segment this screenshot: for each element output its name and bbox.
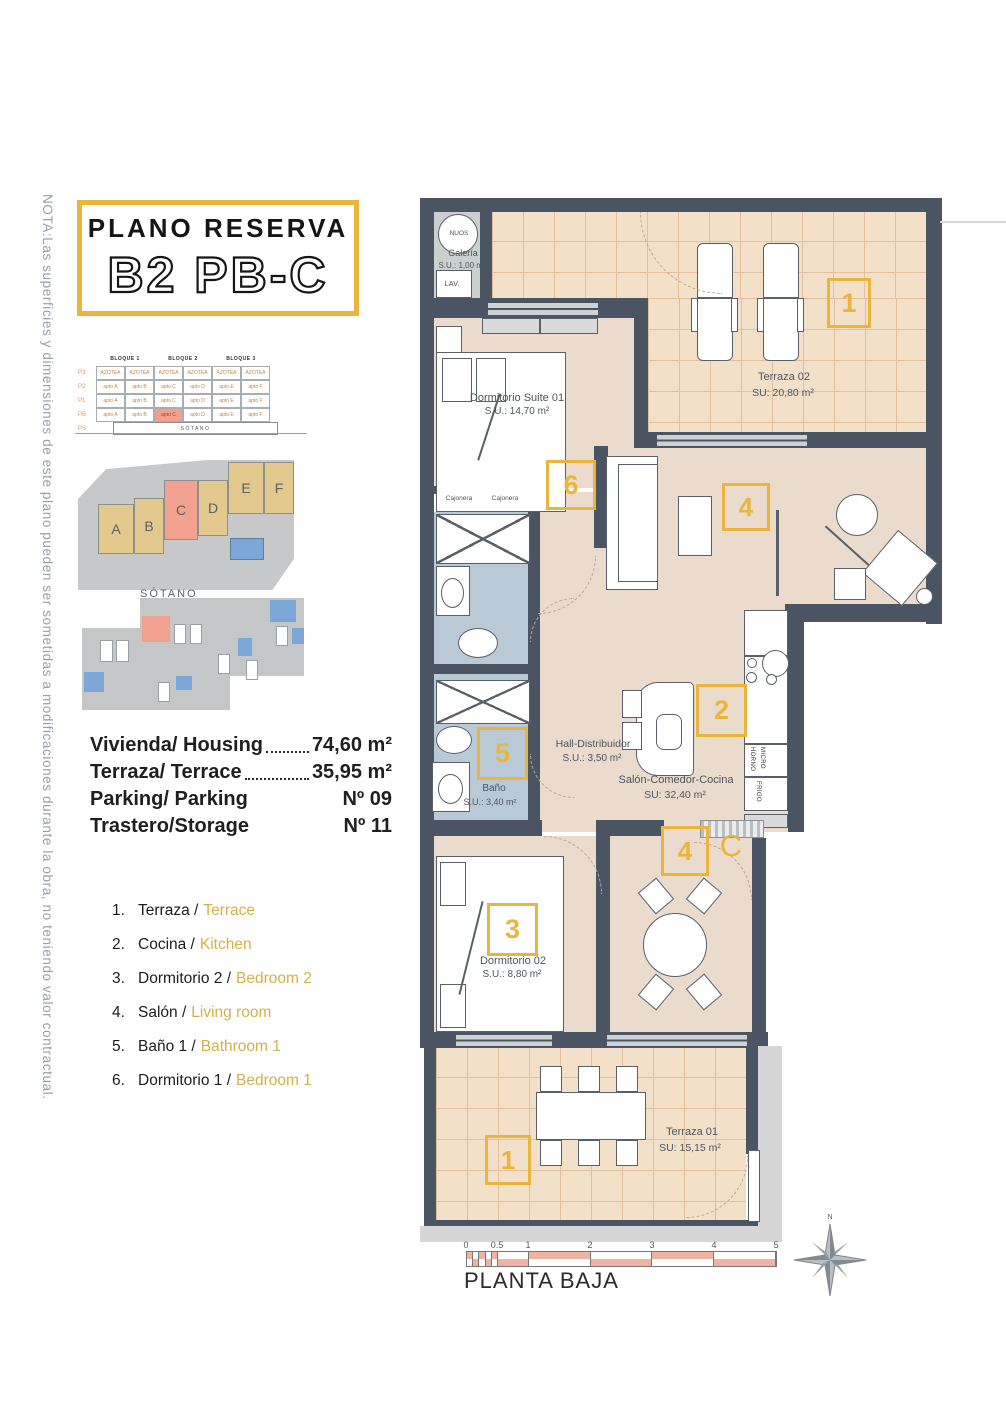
basement-shape bbox=[84, 672, 104, 692]
shower bbox=[436, 514, 530, 564]
suite-name: Dormitorio Suite 01 bbox=[470, 392, 564, 404]
hall-name: Hall-Distribuidor bbox=[556, 738, 631, 750]
legend-english: Bedroom 2 bbox=[236, 970, 312, 988]
galeria-name: Galería bbox=[448, 248, 478, 258]
water-heater-label: NUOS bbox=[450, 230, 469, 237]
marker-bedroom1: 6 bbox=[546, 460, 596, 510]
apartment-cell: apto A bbox=[96, 380, 125, 394]
apartment-cell: AZOTEA bbox=[154, 366, 183, 380]
apartment-cell: apto C bbox=[154, 394, 183, 408]
apartment-cell: AZOTEA bbox=[96, 366, 125, 380]
apartment-cell: AZOTEA bbox=[183, 366, 212, 380]
legend-spanish: Dormitorio 1 / bbox=[138, 1072, 231, 1090]
sun-lounger bbox=[763, 243, 799, 361]
wall-segment bbox=[596, 830, 610, 1034]
floor-label: PB bbox=[78, 408, 96, 422]
scale-cell bbox=[591, 1259, 653, 1266]
armrest bbox=[691, 298, 698, 332]
counter bbox=[744, 610, 788, 656]
unit-code: B2 PB-C bbox=[107, 246, 328, 304]
surface-details: Vivienda/ Housing74,60 m²Terraza/ Terrac… bbox=[90, 730, 392, 838]
scale-cell bbox=[714, 1259, 776, 1266]
legend-item: 2.Cocina /Kitchen bbox=[112, 936, 312, 970]
legend-spanish: Salón / bbox=[138, 1004, 186, 1022]
page-title: PLANO RESERVA bbox=[88, 213, 349, 244]
marker-bedroom2: 3 bbox=[487, 903, 538, 956]
basement-shape bbox=[276, 626, 288, 646]
scale-tick: 0 bbox=[463, 1240, 468, 1250]
cajonera-label-2: Cajonera bbox=[492, 495, 518, 502]
basement-shape bbox=[238, 638, 252, 656]
legend-number: 3. bbox=[112, 970, 138, 988]
detail-label: Vivienda/ Housing bbox=[90, 734, 263, 757]
apartment-cell: apto E bbox=[212, 394, 241, 408]
wall-segment bbox=[420, 198, 942, 212]
apartment-cell: AZOTEA bbox=[125, 366, 154, 380]
apartment-cell: apto B bbox=[125, 408, 154, 422]
scale-bar: 00.512345 bbox=[466, 1240, 778, 1267]
scale-cell bbox=[498, 1252, 529, 1259]
legend-item: 5.Baño 1 /Bathroom 1 bbox=[112, 1038, 312, 1072]
hob-burner bbox=[746, 672, 757, 683]
detail-row: Terraza/ Terrace35,95 m² bbox=[90, 757, 392, 784]
lounger-bar bbox=[697, 297, 733, 299]
fridge-label: FRIGO bbox=[755, 781, 761, 811]
detail-label: Terraza/ Terrace bbox=[90, 761, 242, 784]
marker-living: 4 bbox=[722, 483, 770, 531]
wall-segment bbox=[785, 604, 942, 622]
washbasin bbox=[441, 578, 464, 608]
terrace-chair bbox=[540, 1140, 562, 1166]
apartment-cell: apto F bbox=[241, 408, 270, 422]
legend-spanish: Cocina / bbox=[138, 936, 195, 954]
hob-burner bbox=[766, 674, 777, 685]
legend-item: 6.Dormitorio 1 /Bedroom 1 bbox=[112, 1072, 312, 1106]
legend-english: Bathroom 1 bbox=[201, 1038, 281, 1056]
apartment-cell: apto A bbox=[96, 394, 125, 408]
apartment-cell: apto D bbox=[183, 394, 212, 408]
terrace-chair bbox=[616, 1140, 638, 1166]
scale-cell bbox=[529, 1259, 591, 1266]
scale-cell bbox=[714, 1252, 776, 1259]
boundary-line bbox=[940, 221, 1006, 223]
window bbox=[606, 1034, 748, 1047]
scale-tick: 4 bbox=[711, 1240, 716, 1250]
apartment-cell: apto C bbox=[154, 380, 183, 394]
wall-segment bbox=[420, 198, 434, 1048]
side-table bbox=[834, 568, 866, 600]
scale-cell bbox=[529, 1252, 591, 1259]
nightstand bbox=[436, 326, 462, 354]
toilet bbox=[458, 628, 498, 658]
legend-number: 5. bbox=[112, 1038, 138, 1056]
bano-name: Baño bbox=[482, 783, 505, 794]
terrace-chair bbox=[578, 1066, 600, 1092]
scale-tick: 5 bbox=[773, 1240, 778, 1250]
lamp-base bbox=[916, 588, 933, 605]
scale-cell bbox=[591, 1252, 653, 1259]
detail-row: Vivienda/ Housing74,60 m² bbox=[90, 730, 392, 757]
legend-number: 6. bbox=[112, 1072, 138, 1090]
apartment-cell: apto E bbox=[212, 408, 241, 422]
detail-label: Parking/ Parking bbox=[90, 788, 248, 811]
compass-star-icon bbox=[792, 1222, 868, 1298]
apartment-cell: apto A bbox=[96, 408, 125, 422]
basement-shape bbox=[270, 600, 296, 622]
legend-english: Terrace bbox=[203, 902, 255, 920]
legend-item: 4.Salón /Living room bbox=[112, 1004, 312, 1038]
floor-level-label: PLANTA BAJA bbox=[464, 1268, 619, 1294]
wardrobe bbox=[482, 318, 540, 334]
dining-table bbox=[643, 913, 707, 977]
scale-tick: 0.5 bbox=[491, 1240, 504, 1250]
floor-label: P1 bbox=[78, 394, 96, 408]
pillow bbox=[440, 862, 466, 906]
detail-value: Nº 11 bbox=[344, 815, 392, 838]
scale-tick: 1 bbox=[525, 1240, 530, 1250]
site-block-E: E bbox=[228, 462, 264, 514]
fridge-cabinet bbox=[744, 777, 788, 811]
legend-item: 1.Terraza /Terrace bbox=[112, 902, 312, 936]
site-block-B: B bbox=[134, 498, 164, 554]
terraza02-name: Terraza 02 bbox=[758, 371, 810, 383]
floor-plan-page: NOTA:Las superficies y dimensiones de es… bbox=[0, 0, 1006, 1425]
floor-lamp bbox=[836, 494, 878, 536]
armrest bbox=[757, 298, 764, 332]
marker-kitchen: 2 bbox=[696, 684, 747, 737]
basement-mini-map: SÓTANO bbox=[78, 582, 306, 714]
suite-area: S.U.: 14,70 m² bbox=[485, 406, 549, 417]
legend-english: Living room bbox=[191, 1004, 271, 1022]
basement-shape bbox=[142, 616, 170, 642]
coffee-table bbox=[678, 496, 712, 556]
marker-dining: 4 bbox=[661, 826, 709, 876]
terraza01-area: SU: 15,15 m² bbox=[659, 1142, 721, 1154]
window bbox=[656, 434, 808, 447]
armrest bbox=[731, 298, 738, 332]
marker-terrace-02: 1 bbox=[827, 278, 871, 328]
scale-tick: 3 bbox=[649, 1240, 654, 1250]
legend-spanish: Terraza / bbox=[138, 902, 198, 920]
apartment-cell: apto B bbox=[125, 380, 154, 394]
site-pool bbox=[230, 538, 264, 560]
armrest bbox=[797, 298, 804, 332]
detail-value: Nº 09 bbox=[342, 788, 392, 811]
detail-value: 74,60 m² bbox=[312, 734, 392, 757]
door-leaf bbox=[748, 1150, 760, 1222]
galeria-area: S.U.: 1,00 m² bbox=[438, 261, 485, 270]
island-sink bbox=[656, 714, 682, 750]
bano-area: S.U.: 3,40 m² bbox=[463, 797, 516, 807]
washbasin bbox=[438, 774, 463, 804]
sidewalk bbox=[758, 1046, 782, 1242]
scale-segments bbox=[466, 1251, 777, 1267]
wall-segment bbox=[634, 298, 648, 448]
marker-bathroom: 5 bbox=[477, 727, 528, 780]
window bbox=[455, 1034, 553, 1047]
vertical-disclaimer: NOTA:Las superficies y dimensiones de es… bbox=[40, 194, 55, 1100]
detail-value: 35,95 m² bbox=[312, 761, 392, 784]
table-rule bbox=[75, 433, 307, 434]
detail-row: Parking/ ParkingNº 09 bbox=[90, 784, 392, 811]
marker-terrace-01: 1 bbox=[485, 1135, 531, 1185]
apartment-cell: apto E bbox=[212, 380, 241, 394]
apartment-cell: apto D bbox=[183, 380, 212, 394]
block-row: P3AZOTEAAZOTEAAZOTEAAZOTEAAZOTEAAZOTEA bbox=[78, 366, 278, 380]
microwave-label: MICRO bbox=[759, 747, 765, 777]
salon-area: SU: 32,40 m² bbox=[644, 789, 706, 801]
site-block-F: F bbox=[264, 462, 294, 514]
site-block-C: C bbox=[164, 480, 198, 540]
dotted-leader bbox=[245, 778, 309, 780]
terrace-chair bbox=[540, 1066, 562, 1092]
hob-burner bbox=[762, 650, 789, 677]
pillow bbox=[440, 984, 466, 1028]
scale-tick: 2 bbox=[587, 1240, 592, 1250]
wall-segment bbox=[752, 838, 766, 1034]
wall-segment bbox=[432, 820, 542, 836]
block-header: BLOQUE 2 bbox=[154, 356, 212, 366]
terrace-chair bbox=[616, 1066, 638, 1092]
basement-shape bbox=[158, 682, 170, 702]
floor-label: P2 bbox=[78, 380, 96, 394]
title-box: PLANO RESERVA B2 PB-C bbox=[77, 200, 359, 316]
legend-english: Bedroom 1 bbox=[236, 1072, 312, 1090]
scale-cell bbox=[498, 1259, 529, 1266]
dotted-leader bbox=[266, 751, 309, 753]
block-row: P1apto Aapto Bapto Capto Dapto Eapto F bbox=[78, 394, 278, 408]
block-level-table: BLOQUE 1BLOQUE 2BLOQUE 3P3AZOTEAAZOTEAAZ… bbox=[78, 356, 278, 436]
apartment-cell: apto C bbox=[154, 408, 183, 422]
legend-item: 3.Dormitorio 2 /Bedroom 2 bbox=[112, 970, 312, 1004]
block-headers: BLOQUE 1BLOQUE 2BLOQUE 3 bbox=[96, 356, 278, 366]
terrace-chair bbox=[578, 1140, 600, 1166]
lounger-bar bbox=[763, 297, 799, 299]
legend-number: 2. bbox=[112, 936, 138, 954]
stool bbox=[622, 690, 642, 718]
north-label: N bbox=[827, 1214, 832, 1221]
basement-shape bbox=[292, 628, 304, 644]
wall-segment bbox=[424, 1046, 436, 1224]
washer-label: LAV. bbox=[444, 279, 459, 288]
basement-shape bbox=[100, 640, 113, 662]
basement-shape bbox=[246, 660, 258, 680]
scale-cell bbox=[652, 1259, 714, 1266]
pillow bbox=[442, 358, 472, 402]
basement-shape bbox=[174, 624, 186, 644]
floor-label: P3 bbox=[78, 366, 96, 380]
site-block-D: D bbox=[198, 480, 228, 536]
terraza02-area: SU: 20,80 m² bbox=[752, 387, 814, 399]
basement-shape bbox=[218, 654, 230, 674]
oven-label: HORNO bbox=[749, 747, 755, 777]
block-header: BLOQUE 1 bbox=[96, 356, 154, 366]
legend-number: 1. bbox=[112, 902, 138, 920]
scale-cell bbox=[652, 1252, 714, 1259]
toilet bbox=[436, 726, 472, 754]
wall-segment bbox=[432, 664, 540, 674]
basement-shape bbox=[116, 640, 129, 662]
legend-number: 4. bbox=[112, 1004, 138, 1022]
apartment-cell: AZOTEA bbox=[241, 366, 270, 380]
tv-unit bbox=[776, 510, 779, 596]
wall-segment bbox=[480, 210, 492, 300]
hall-area: S.U.: 3,50 m² bbox=[563, 753, 622, 764]
detail-label: Trastero/Storage bbox=[90, 815, 249, 838]
dorm2-area: S.U.: 8,80 m² bbox=[483, 969, 542, 980]
terraza01-name: Terraza 01 bbox=[666, 1126, 718, 1138]
site-plan-mini-map: ABCDEF bbox=[78, 460, 294, 590]
apartment-cell: AZOTEA bbox=[212, 366, 241, 380]
salon-name: Salón-Comedor-Cocina bbox=[619, 774, 734, 786]
basement-shape bbox=[190, 624, 202, 644]
legend-spanish: Baño 1 / bbox=[138, 1038, 196, 1056]
block-header: BLOQUE 3 bbox=[212, 356, 270, 366]
wall-segment bbox=[788, 604, 804, 832]
block-row: PBapto Aapto Bapto Capto Dapto Eapto F bbox=[78, 408, 278, 422]
scale-ticks: 00.512345 bbox=[466, 1240, 778, 1251]
window bbox=[487, 302, 599, 316]
basement-shape bbox=[176, 676, 192, 690]
block-row: P2apto Aapto Bapto Capto Dapto Eapto F bbox=[78, 380, 278, 394]
legend-spanish: Dormitorio 2 / bbox=[138, 970, 231, 988]
cajonera-label-1: Cajonera bbox=[446, 495, 472, 502]
site-block-A: A bbox=[98, 504, 134, 554]
apartment-cell: apto F bbox=[241, 380, 270, 394]
wardrobe bbox=[540, 318, 598, 334]
compass-rose: N bbox=[792, 1222, 868, 1298]
hob-burner bbox=[747, 658, 757, 668]
apartment-cell: apto D bbox=[183, 408, 212, 422]
sofa-seat bbox=[618, 464, 658, 582]
detail-row: Trastero/StorageNº 11 bbox=[90, 811, 392, 838]
terrace-table bbox=[536, 1092, 646, 1140]
entrance-door-letter: C bbox=[720, 828, 742, 864]
room-legend: 1.Terraza /Terrace2.Cocina /Kitchen3.Dor… bbox=[112, 902, 312, 1106]
apartment-cell: apto B bbox=[125, 394, 154, 408]
dorm2-name: Dormitorio 02 bbox=[480, 955, 546, 967]
legend-english: Kitchen bbox=[200, 936, 252, 954]
shower bbox=[436, 680, 530, 724]
apartment-cell: apto F bbox=[241, 394, 270, 408]
